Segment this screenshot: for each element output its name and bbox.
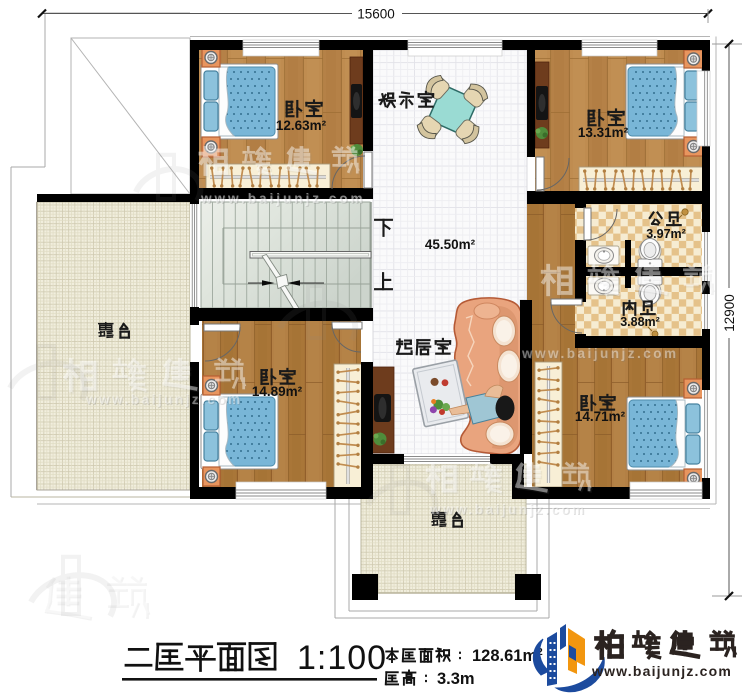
svg-text:12.63m²: 12.63m² [276,118,327,133]
svg-text:www.baijunjz.com: www.baijunjz.com [591,663,732,679]
svg-text:1:100: 1:100 [297,639,387,677]
svg-text:www.baijunjz.com: www.baijunjz.com [521,346,679,361]
svg-text:15600: 15600 [357,7,395,22]
svg-text:www.baijunjz.com: www.baijunjz.com [429,502,587,517]
svg-text:3.97m²: 3.97m² [646,227,686,241]
svg-text:3.3m: 3.3m [437,670,475,688]
svg-text:45.50m²: 45.50m² [425,237,476,252]
svg-text:12900: 12900 [722,294,737,332]
svg-text:www.baijunjz.com: www.baijunjz.com [200,191,366,206]
svg-text:13.31m²: 13.31m² [578,125,629,140]
svg-text:14.71m²: 14.71m² [575,409,626,424]
svg-text:128.61m2: 128.61m2 [472,647,543,665]
svg-text:14.89m²: 14.89m² [252,384,303,399]
svg-text:www.baijunjz.com: www.baijunjz.com [85,392,243,407]
svg-text:3.88m²: 3.88m² [620,315,660,329]
